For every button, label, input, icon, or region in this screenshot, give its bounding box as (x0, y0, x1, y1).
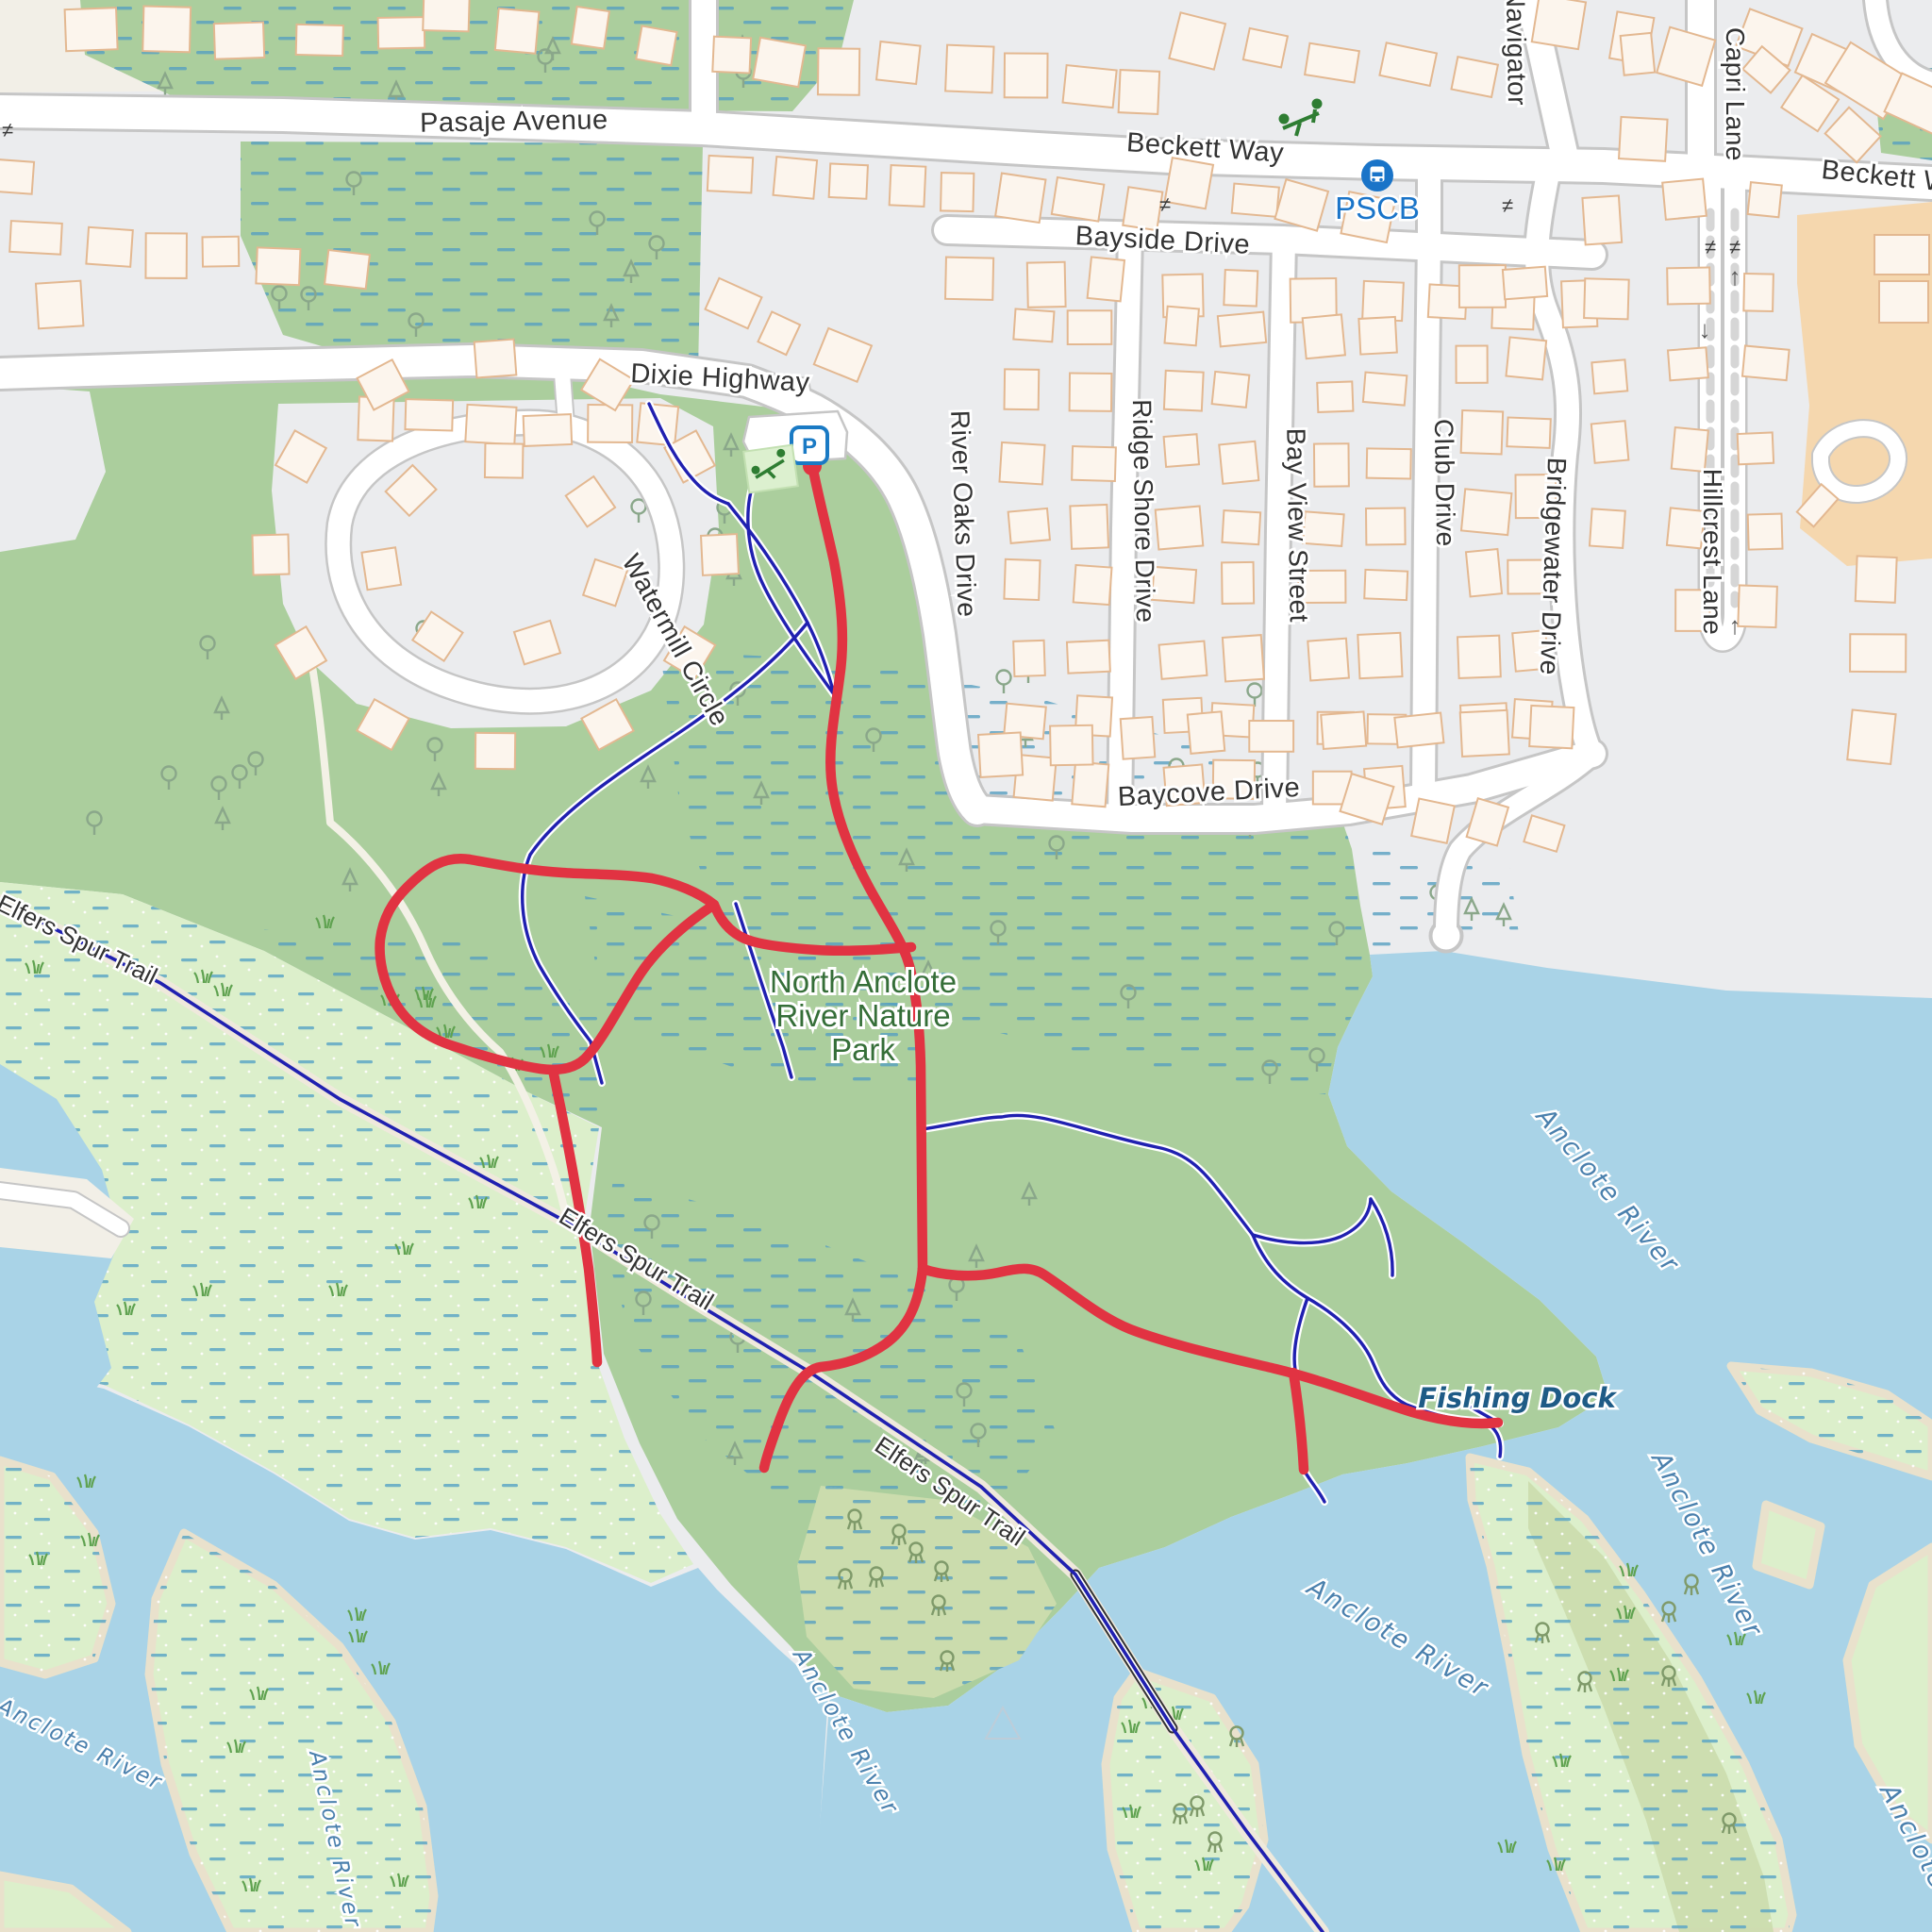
building (1317, 381, 1353, 412)
park-name-line2: River Nature (775, 998, 950, 1033)
building (1050, 725, 1092, 765)
building (1457, 636, 1501, 678)
building (636, 25, 676, 65)
building (1503, 267, 1547, 300)
building (252, 535, 289, 575)
building (1532, 0, 1586, 49)
building (1212, 372, 1250, 408)
building (1169, 12, 1225, 69)
building (1165, 307, 1199, 346)
gate-icon: ≠ (2, 118, 13, 142)
building (1068, 310, 1112, 344)
building (1411, 799, 1455, 843)
building (941, 173, 974, 211)
building (1219, 441, 1258, 484)
gate-icon: ≠ (1159, 192, 1171, 216)
building (1856, 556, 1897, 602)
building (1223, 635, 1264, 681)
building (1662, 179, 1707, 220)
building (1668, 347, 1708, 380)
building (1305, 43, 1359, 83)
building (1121, 717, 1156, 759)
street-label-navigator: Navigator (1501, 0, 1532, 106)
building (1188, 711, 1225, 754)
building (475, 733, 515, 769)
building (712, 37, 751, 74)
building (1584, 278, 1629, 319)
street-label-club: Club Drive (1429, 419, 1460, 547)
building (1366, 508, 1406, 545)
building (1072, 446, 1116, 481)
road-club (1424, 170, 1429, 793)
building (1013, 308, 1054, 341)
building (1460, 710, 1509, 757)
building (829, 163, 868, 198)
building (405, 399, 453, 430)
street-label-bay-view: Bay View Street (1281, 427, 1314, 623)
poi-label-bus-stop: PSCB (1335, 191, 1420, 225)
parking-letter: P (802, 434, 817, 459)
building (572, 7, 609, 49)
building (1218, 312, 1266, 347)
building (995, 174, 1045, 223)
gate-icon: ≠ (1729, 235, 1740, 258)
building (256, 247, 300, 285)
park-name-line3: Park (831, 1032, 895, 1067)
street-label-hillcrest: Hillcrest Lane (1698, 469, 1727, 636)
building (1027, 262, 1066, 308)
street-label-pasaje: Pasaje Avenue (420, 105, 608, 138)
building (1314, 443, 1349, 486)
building (325, 250, 370, 289)
building (361, 547, 401, 590)
building (1067, 641, 1110, 674)
building (1847, 709, 1895, 763)
building (145, 233, 187, 278)
street-label-capri: Capri Lane (1721, 27, 1750, 161)
building (1466, 549, 1502, 596)
building (701, 534, 739, 575)
building (495, 8, 540, 54)
building (1748, 182, 1782, 217)
building (708, 156, 753, 192)
gate-icon: ≠ (1705, 235, 1716, 258)
building (1013, 641, 1045, 676)
building (876, 42, 921, 84)
parking-icon[interactable]: P (791, 427, 827, 463)
building (1619, 117, 1668, 161)
building (1529, 706, 1574, 748)
building (1621, 33, 1655, 75)
building (1507, 418, 1550, 448)
building (1461, 489, 1511, 535)
building (378, 17, 425, 48)
oneway-up-icon: ↑ (1729, 262, 1741, 291)
building (1008, 508, 1050, 543)
building (1452, 57, 1498, 97)
building (1591, 421, 1629, 463)
building (1363, 373, 1407, 406)
building (465, 405, 516, 444)
building (1070, 374, 1112, 411)
building (1307, 639, 1349, 681)
building (1357, 633, 1402, 678)
building (753, 38, 806, 87)
building (588, 405, 632, 442)
building (1222, 510, 1260, 544)
building (36, 281, 83, 329)
oneway-up-icon: ↑ (1729, 611, 1741, 640)
park-name-line1: North Anclote (770, 964, 957, 999)
map-viewport[interactable]: P ≠ (0, 0, 1932, 1932)
building (1672, 427, 1708, 472)
building (1874, 235, 1929, 275)
building (1743, 274, 1774, 311)
building (1232, 184, 1279, 217)
building (890, 165, 926, 207)
building (1165, 158, 1213, 208)
building (1748, 514, 1783, 550)
building (1459, 265, 1506, 308)
building (818, 48, 859, 94)
building (1667, 268, 1710, 305)
building (1321, 711, 1366, 749)
building (1070, 505, 1108, 549)
building (1159, 641, 1207, 679)
building (1738, 585, 1777, 627)
building (296, 25, 343, 56)
building (1052, 177, 1104, 222)
building (1074, 565, 1112, 605)
building (1063, 65, 1117, 108)
building (1224, 270, 1257, 307)
building (1362, 281, 1404, 321)
building (524, 414, 573, 446)
building (1088, 257, 1124, 301)
building (774, 157, 818, 199)
building (0, 159, 34, 194)
oneway-down-icon: ↓ (1699, 315, 1711, 343)
building (1005, 369, 1040, 409)
building (1394, 713, 1443, 748)
building (1461, 410, 1504, 454)
building (1243, 28, 1288, 67)
building (1119, 70, 1160, 114)
building (1850, 634, 1906, 672)
map-canvas[interactable]: P ≠ (0, 0, 1932, 1932)
building (1364, 570, 1407, 600)
building (1249, 721, 1293, 752)
building (1582, 195, 1622, 244)
building (1222, 562, 1254, 604)
building (1742, 345, 1790, 380)
building (1164, 434, 1199, 467)
building (65, 8, 118, 51)
building (1456, 346, 1487, 383)
bus-stop-icon[interactable] (1361, 159, 1393, 192)
building (1367, 448, 1411, 478)
building (485, 443, 523, 478)
building (1358, 317, 1396, 355)
building (1879, 281, 1928, 323)
building (423, 0, 469, 31)
building (1590, 508, 1625, 548)
building (475, 340, 517, 378)
building (999, 442, 1044, 484)
building (945, 45, 993, 93)
building (945, 258, 993, 300)
building (203, 237, 240, 267)
building (9, 221, 62, 255)
poi-label-fishing-dock: Fishing Dock (1418, 1382, 1617, 1414)
building (86, 227, 132, 267)
building (1164, 371, 1204, 411)
building (142, 7, 191, 53)
gate-icon: ≠ (1502, 193, 1513, 217)
wetland-mid-pattern (241, 142, 703, 375)
street-label-ridge-shore: Ridge Shore Drive (1127, 399, 1160, 624)
building (1156, 506, 1204, 549)
building (978, 732, 1023, 776)
playground-icon-park (743, 445, 798, 493)
building (1591, 359, 1627, 393)
building (1004, 559, 1040, 600)
building (214, 22, 264, 58)
building (1005, 53, 1048, 97)
building (1506, 337, 1546, 379)
building (1072, 762, 1108, 808)
building (1303, 314, 1345, 358)
building (1738, 432, 1774, 464)
